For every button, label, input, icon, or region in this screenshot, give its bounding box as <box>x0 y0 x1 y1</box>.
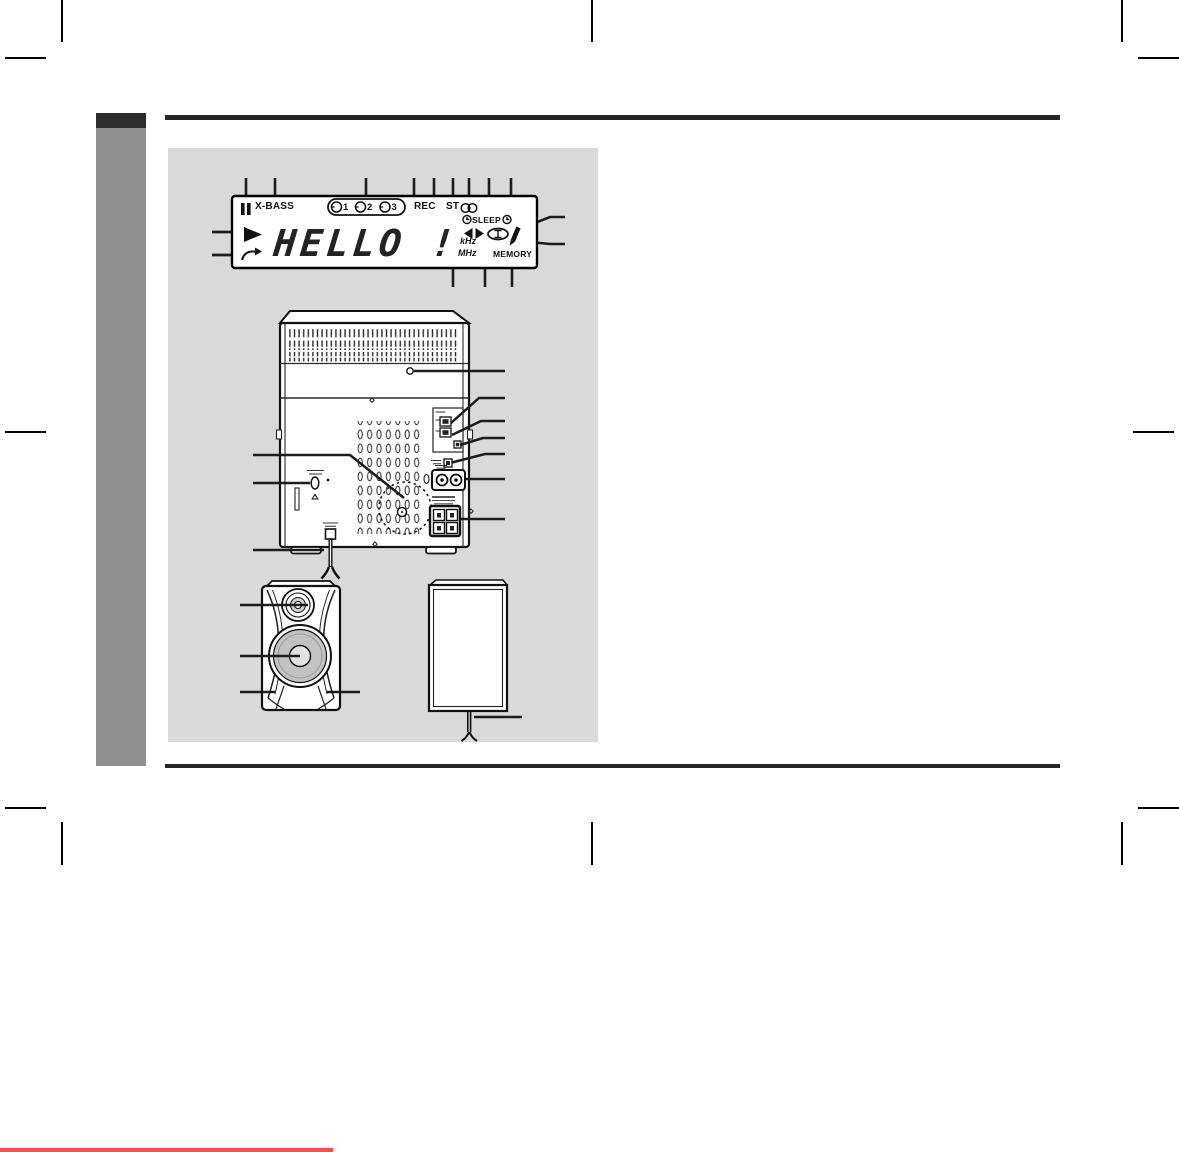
speaker-cable <box>462 711 478 741</box>
chapter-sidebar <box>96 128 146 766</box>
unit-top-face <box>280 311 469 323</box>
crop-mark <box>61 822 63 865</box>
screw <box>407 368 413 374</box>
st-indicator: ST <box>446 202 459 212</box>
crop-mark <box>1138 807 1179 809</box>
crop-mark <box>1138 57 1179 59</box>
crop-mark <box>591 0 593 42</box>
speaker-cabinet-rear <box>429 585 507 711</box>
perforated-vents <box>355 421 423 534</box>
disc-number: 2 <box>367 203 372 213</box>
callout-line <box>453 268 512 287</box>
disc-number: 3 <box>392 203 397 213</box>
footer-accent-line <box>0 1148 333 1152</box>
crop-mark <box>5 807 46 809</box>
antenna-terminal-panel <box>433 408 463 452</box>
segment-display-text: HELLO ! <box>272 225 460 262</box>
callout-line <box>246 178 511 196</box>
rear-panel-diagram <box>253 311 505 579</box>
sleep-indicator: SLEEP <box>472 216 501 225</box>
disc-number: 1 <box>343 203 348 213</box>
illustration-panel: X-BASS 1 2 3 REC ST SLEEP HELLO ! kHz MH… <box>168 148 598 742</box>
crop-mark <box>1121 0 1123 42</box>
speaker-rear-diagram <box>429 580 522 741</box>
khz-indicator: kHz <box>460 237 476 246</box>
crop-mark <box>591 822 593 865</box>
rec-indicator: REC <box>414 202 436 212</box>
top-rule <box>165 115 1060 120</box>
crop-mark <box>1133 431 1174 433</box>
x-bass-indicator: X-BASS <box>255 202 294 212</box>
foot <box>426 547 456 554</box>
manual-page: X-BASS 1 2 3 REC ST SLEEP HELLO ! kHz MH… <box>0 0 1179 1152</box>
memory-indicator: MEMORY <box>493 250 532 259</box>
crop-mark <box>61 0 63 42</box>
mhz-indicator: MHz <box>458 249 477 258</box>
crop-mark <box>1121 822 1123 865</box>
crop-mark <box>5 431 46 433</box>
chapter-tab <box>96 113 146 128</box>
speaker-front-diagram <box>240 581 360 710</box>
crop-mark <box>5 57 46 59</box>
rear-vents <box>280 329 469 364</box>
bottom-rule <box>165 764 1060 768</box>
